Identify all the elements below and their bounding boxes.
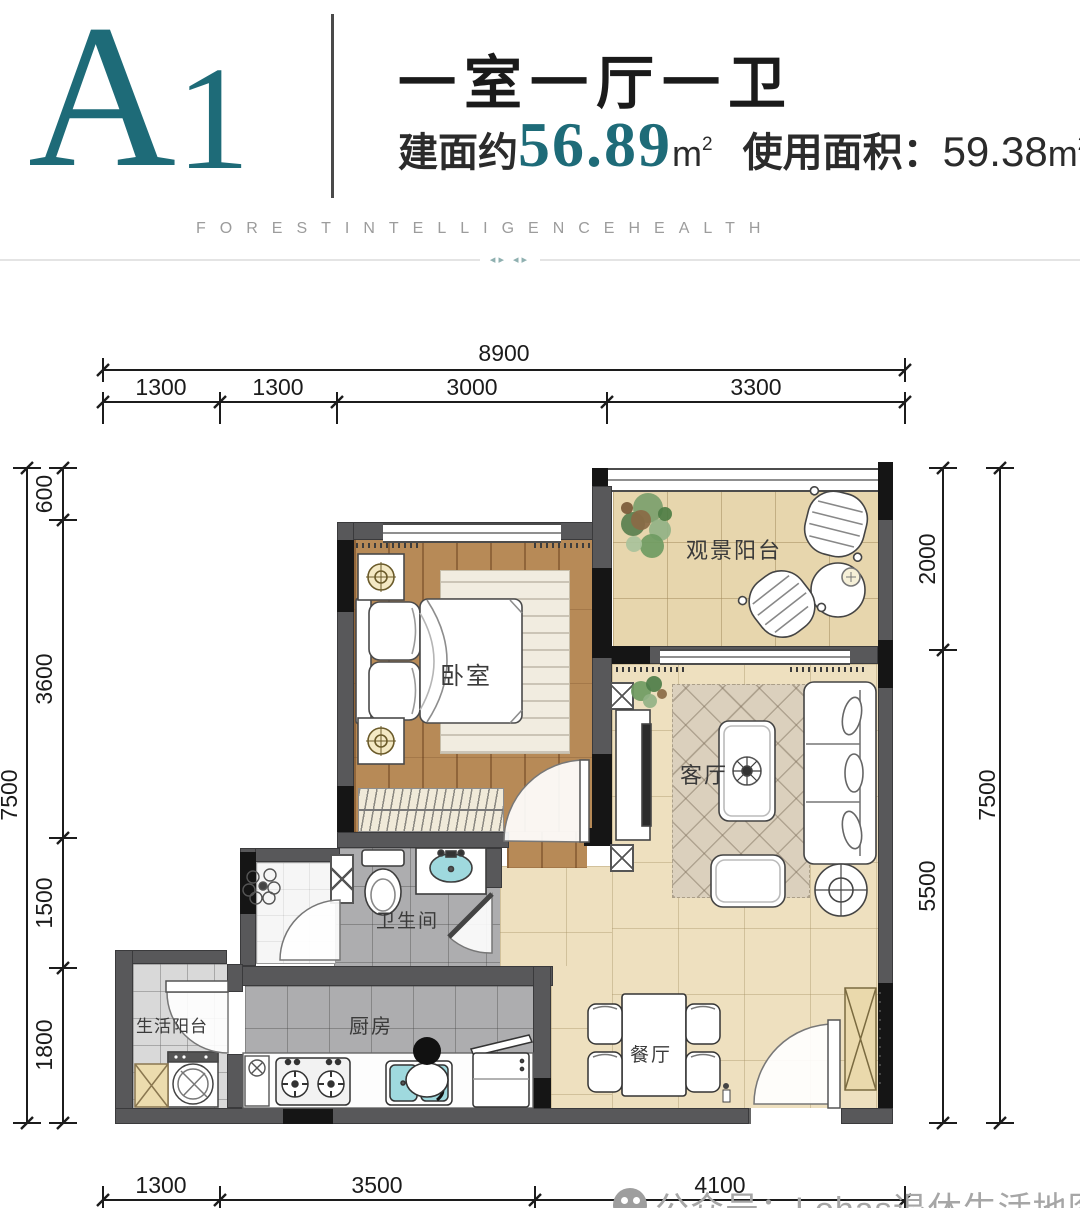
dim-left-seg-3: 1500 [31,858,59,948]
dim-left-seg-2: 3600 [31,634,59,724]
room-label-dining: 餐厅 [630,1040,672,1067]
dim-right-total: 7500 [974,750,1002,840]
dim-top-seg-1: 1300 [116,374,206,401]
room-label-bedroom: 卧室 [440,656,492,691]
dim-right-seg-1: 2000 [914,514,942,604]
room-label-living: 客厅 [680,758,728,790]
watermark-text: 公众号：Lohas退休生活地图 [655,1182,1080,1208]
dim-top-seg-4: 3300 [711,374,801,401]
dim-top-seg-2: 1300 [233,374,323,401]
dim-left-total: 7500 [0,750,24,840]
dim-bottom-seg-2: 3500 [332,1172,422,1199]
dim-top-total: 8900 [459,340,549,367]
dim-right-seg-2: 5500 [914,841,942,931]
floorplan-page: A 1 一室一厅一卫 建面约 56.89 m 2 使用面积： 59.38 m 2… [0,0,1080,1208]
dim-bottom-seg-1: 1300 [116,1172,206,1199]
room-label-bathroom: 卫生间 [376,906,439,933]
dim-top-seg-3: 3000 [427,374,517,401]
room-label-view-balcony: 观景阳台 [686,533,782,565]
room-label-kitchen: 厨房 [349,1010,393,1039]
room-label-life-balcony: 生活阳台 [136,1012,208,1037]
dim-left-seg-1: 600 [31,449,59,539]
dim-left-seg-4: 1800 [31,1000,59,1090]
